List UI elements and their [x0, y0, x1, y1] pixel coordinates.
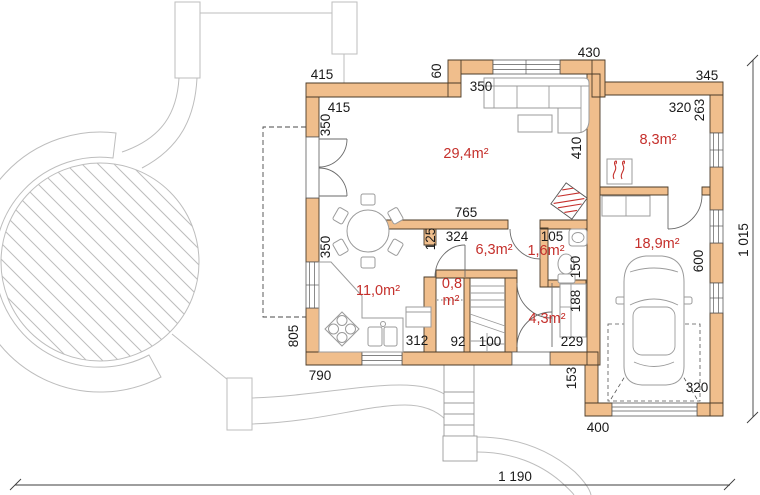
dim-overall-width: 1 190 — [498, 469, 532, 484]
dim-boiler-depth: 263 — [692, 99, 707, 122]
dim-overall-height: 1 015 — [736, 223, 751, 257]
dim-bottom-left: 790 — [309, 368, 332, 383]
car — [616, 256, 692, 385]
boiler — [607, 159, 632, 184]
dining-table — [332, 194, 403, 268]
terrace-dashed-outline — [263, 127, 306, 317]
dim-top-window: 350 — [470, 79, 493, 94]
porch-steps — [443, 363, 477, 461]
dim-hall-v: 125 — [423, 228, 438, 251]
wc-sink — [569, 229, 587, 246]
dim-boiler-width: 320 — [669, 100, 692, 115]
window-right-garage-2 — [710, 283, 723, 313]
floor-plan-drawing: 415 430 345 60 350 415 350 765 410 320 2… — [0, 0, 760, 495]
window-top-living — [493, 60, 560, 74]
room-label-living: 29,4m² — [443, 146, 488, 162]
room-label-closet-2: m² — [443, 293, 460, 309]
dim-garage-door: 320 — [686, 380, 709, 395]
boiler-room-cabinet — [602, 196, 650, 216]
dim-inner-top: 415 — [328, 100, 351, 115]
dim-left-side: 805 — [286, 325, 301, 348]
window-kitchen-bottom — [362, 352, 402, 365]
floor-plan-canvas: 415 430 345 60 350 415 350 765 410 320 2… — [0, 0, 760, 495]
dim-kitchen-bottom: 312 — [406, 333, 429, 348]
dim-step: 60 — [429, 63, 444, 78]
room-label-garage: 18,9m² — [634, 236, 679, 252]
window-left-dining — [306, 262, 319, 308]
dim-stairs: 100 — [479, 334, 502, 349]
room-label-hall: 6,3m² — [475, 242, 512, 258]
dim-living-height: 410 — [569, 137, 584, 160]
dim-inner-top-v: 350 — [318, 114, 333, 137]
window-right-garage-1 — [710, 210, 723, 243]
room-label-kitchen: 11,0m² — [356, 283, 400, 299]
terrace-french-door — [306, 137, 347, 198]
room-label-wc: 1,6m² — [527, 243, 564, 259]
coffee-table — [518, 115, 552, 132]
dim-closet: 92 — [450, 334, 465, 349]
room-label-closet-1: 0,8 — [442, 276, 462, 292]
terrace-circle — [0, 19, 215, 495]
garage-door — [612, 403, 697, 416]
window-right-boiler — [710, 133, 723, 167]
kitchen-counter — [319, 262, 403, 352]
dimension-line-bottom — [10, 479, 735, 490]
dim-garage-depth: 600 — [691, 250, 706, 273]
dim-top-right: 345 — [696, 68, 719, 83]
dim-living-width: 765 — [455, 205, 478, 220]
dim-wc-depth: 150 — [568, 256, 583, 279]
dim-entry-nook: 188 — [568, 290, 583, 313]
dim-garage-side: 153 — [564, 367, 579, 390]
dim-garage-bottom: 400 — [587, 420, 610, 435]
dim-entry-bottom: 229 — [561, 334, 584, 349]
dim-top-left: 415 — [311, 67, 334, 82]
door-boiler-garage — [668, 195, 702, 229]
fireplace — [551, 183, 587, 219]
dim-left-window: 350 — [318, 236, 333, 259]
dim-hall-h: 324 — [446, 229, 469, 244]
room-label-boiler: 8,3m² — [639, 132, 676, 148]
front-door-opening — [512, 352, 550, 365]
fridge — [406, 307, 431, 327]
dim-top-mid: 430 — [578, 45, 601, 60]
dim-wc-door: 105 — [541, 229, 564, 244]
room-label-entry: 4,3m² — [528, 311, 565, 327]
